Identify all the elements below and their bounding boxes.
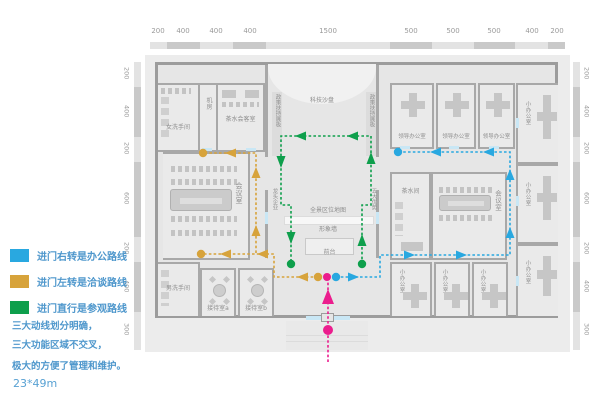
plan-size-note: 23*49m	[13, 377, 57, 390]
tour-route-swatch	[10, 301, 29, 314]
entrance-dot	[323, 325, 333, 335]
negotiation-route-swatch	[10, 275, 29, 288]
entrance-route-arrow	[322, 289, 334, 304]
office-route-arrow	[506, 227, 515, 238]
tour-route-arrow	[358, 234, 367, 246]
legend-item-office: 进门右转是办公路线	[10, 248, 145, 263]
negotiation-route-arrow	[225, 149, 236, 158]
office-route-arrow	[348, 273, 359, 282]
negotiation-route-end-dot	[197, 250, 205, 258]
legend: 进门右转是办公路线 进门左转是洽谈路线 进门直行是参观路线	[10, 248, 145, 326]
tour-route-arrow	[287, 232, 296, 244]
office-route-swatch	[10, 249, 29, 262]
entrance-junction-dot	[323, 273, 331, 281]
negotiation-route-arrow	[252, 167, 261, 178]
negotiation-route-arrow	[220, 250, 231, 259]
negotiation-route-start-dot	[314, 273, 322, 281]
negotiation-route-arrow	[257, 250, 268, 259]
tour-route-arrow	[277, 156, 286, 168]
negotiation-route-arrow	[297, 273, 308, 282]
note-line: 三大功能区域不交叉，	[12, 337, 107, 351]
legend-item-negotiation: 进门左转是洽谈路线	[10, 274, 145, 289]
note-line: 极大的方便了管理和维护。	[12, 358, 126, 372]
tour-route-arrow	[367, 152, 376, 164]
office-route-arrow	[404, 251, 415, 260]
office-route-arrow	[483, 148, 494, 157]
tour-route-start-dot	[358, 260, 366, 268]
note-line: 三大动线划分明确，	[12, 318, 98, 332]
negotiation-route-line	[203, 153, 256, 253]
office-route-arrow	[456, 251, 467, 260]
legend-label: 进门右转是办公路线	[37, 248, 127, 263]
office-route-arrow	[506, 169, 515, 180]
office-route-end-dot	[394, 148, 402, 156]
floor-plan-infographic: 200 400 400 400 1500 500 500 500 400 200…	[0, 0, 600, 400]
legend-label: 进门直行是参观路线	[37, 300, 127, 315]
negotiation-route-arrow	[252, 225, 261, 236]
legend-label: 进门左转是洽谈路线	[37, 274, 127, 289]
tour-route-end-dot	[287, 260, 295, 268]
tour-route-line	[281, 136, 371, 264]
office-route-start-dot	[332, 273, 340, 281]
office-route-arrow	[430, 148, 441, 157]
negotiation-route-end-dot	[199, 149, 207, 157]
tour-route-arrow	[295, 132, 306, 141]
negotiation-route-line	[201, 254, 318, 277]
tour-route-arrow	[347, 132, 358, 141]
legend-item-tour: 进门直行是参观路线	[10, 300, 145, 315]
